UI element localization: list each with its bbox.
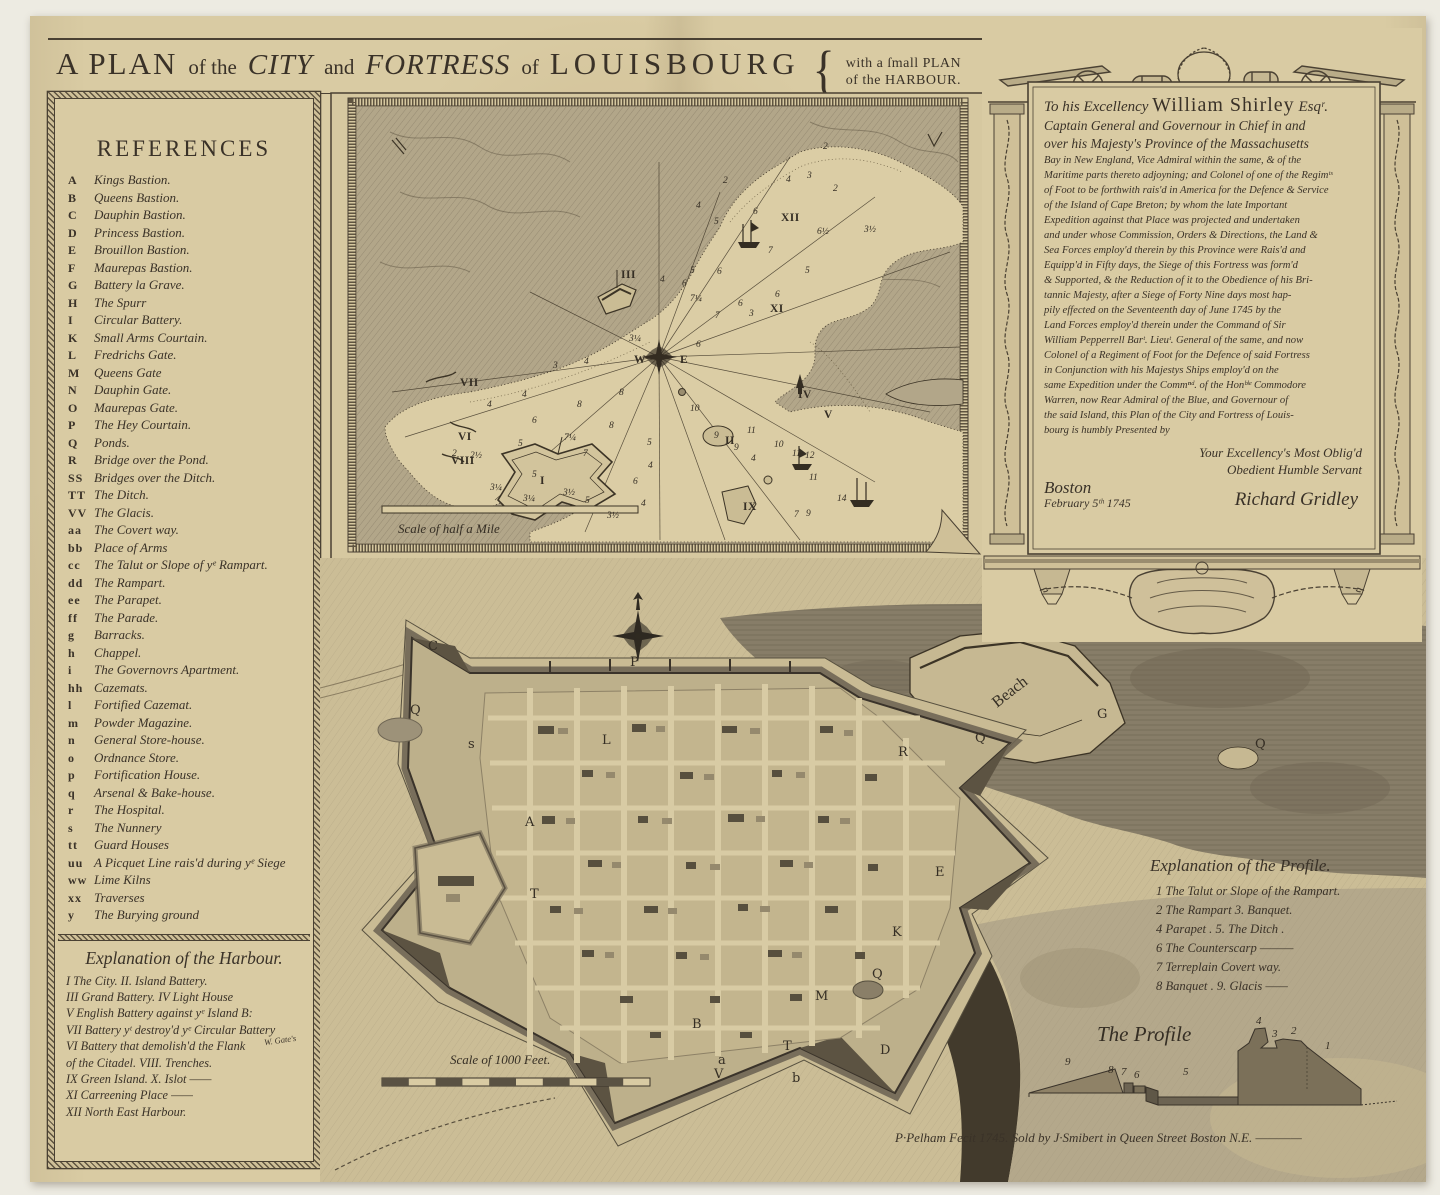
svg-text:T: T	[783, 1039, 792, 1054]
salutation-script: To his Excellency	[1044, 99, 1148, 115]
reference-key: SS	[68, 471, 94, 486]
profile-title: The Profile	[1097, 1022, 1191, 1046]
reference-key: q	[68, 786, 94, 801]
reference-item: l Fortified Cazemat.	[68, 697, 314, 715]
svg-text:IX: IX	[743, 501, 757, 513]
reference-label: Place of Arms	[94, 540, 167, 556]
svg-text:a: a	[718, 1053, 726, 1068]
reference-label: The Burying ground	[94, 907, 199, 923]
banquet-step	[1124, 1083, 1133, 1093]
reference-label: Lime Kilns	[94, 872, 151, 888]
reference-item: g Barracks.	[68, 627, 314, 645]
reference-label: The Parade.	[94, 610, 158, 626]
dedication-line: Bay in New England, Vice Admiral within …	[1044, 153, 1376, 168]
svg-text:5: 5	[532, 470, 537, 480]
dedication-body: Captain General and Governour in Chief i…	[1044, 117, 1376, 438]
reference-label: Battery la Grave.	[94, 277, 185, 293]
main-scale-bar	[382, 1078, 650, 1086]
reference-key: p	[68, 768, 94, 783]
dedication-place-date: Boston February 5ᵗʰ 1745	[1044, 480, 1131, 511]
reference-label: Queens Gate	[94, 365, 162, 381]
reference-label: Dauphin Gate.	[94, 382, 171, 398]
harbour-explanation-line: XI Carreening Place ——	[66, 1087, 314, 1103]
reference-item: SS Bridges over the Ditch.	[68, 470, 314, 488]
dedication-place: Boston	[1044, 480, 1131, 496]
svg-text:E: E	[680, 354, 688, 366]
svg-text:8: 8	[619, 388, 624, 398]
reference-item: C Dauphin Bastion.	[68, 207, 314, 225]
dedication-line: in Conjunction with his Majestys Ships e…	[1044, 363, 1376, 378]
reference-key: E	[68, 243, 94, 258]
title-and: and	[324, 55, 354, 80]
svg-text:3¼: 3¼	[628, 333, 641, 344]
svg-text:7¼: 7¼	[564, 432, 576, 443]
svg-text:s: s	[468, 737, 475, 752]
reference-key: y	[68, 908, 94, 923]
harbour-explanation-line: of the Citadel. VIII. Trenches.	[66, 1055, 314, 1071]
title-louisbourg: LOUISBOURG	[550, 46, 800, 82]
harbour-explanation-line: III Grand Battery. IV Light House	[66, 989, 314, 1005]
scanned-map-page: { "title": { "segments": [ {"t": "A PLAN…	[0, 0, 1440, 1195]
reference-key: xx	[68, 891, 94, 906]
svg-text:V: V	[824, 409, 833, 421]
svg-text:Q: Q	[1255, 737, 1266, 752]
reference-key: h	[68, 646, 94, 661]
reference-label: The Governovrs Apartment.	[94, 662, 239, 678]
svg-text:3½: 3½	[863, 224, 876, 235]
svg-text:5: 5	[585, 496, 590, 506]
reference-item: p Fortification House.	[68, 767, 314, 785]
svg-text:T: T	[530, 887, 539, 902]
reference-key: l	[68, 698, 94, 713]
reference-key: TT	[68, 488, 94, 503]
reference-label: Queens Bastion.	[94, 190, 179, 206]
reference-label: Maurepas Bastion.	[94, 260, 192, 276]
reference-key: L	[68, 348, 94, 363]
harbour-explanation-line: I The City. II. Island Battery.	[66, 973, 314, 989]
svg-text:10: 10	[690, 404, 700, 414]
dedication-line: Maritime parts thereto adjoyning; and Co…	[1044, 168, 1376, 183]
harbour-explanation-heading: Explanation of the Harbour.	[54, 948, 314, 969]
reference-item: s The Nunnery	[68, 820, 314, 838]
svg-text:6: 6	[753, 207, 758, 217]
reference-item: R Bridge over the Pond.	[68, 452, 314, 470]
reference-key: g	[68, 628, 94, 643]
reference-item: hh Cazemats.	[68, 680, 314, 698]
svg-text:6: 6	[532, 416, 537, 426]
reference-item: M Queens Gate	[68, 365, 314, 383]
terreplain-step	[1134, 1086, 1145, 1093]
svg-text:4: 4	[660, 275, 665, 285]
svg-text:6: 6	[682, 279, 687, 289]
svg-text:3¼: 3¼	[522, 493, 535, 504]
svg-text:5: 5	[647, 438, 652, 448]
reference-label: Barracks.	[94, 627, 145, 643]
reference-key: s	[68, 821, 94, 836]
dedication-line: & Supported, & the Reduction of it to th…	[1044, 273, 1376, 288]
reference-item: B Queens Bastion.	[68, 190, 314, 208]
dedication-text: To his Excellency William Shirley Esqʳ. …	[1034, 86, 1386, 554]
svg-text:3: 3	[552, 361, 558, 371]
svg-text:3¼: 3¼	[489, 482, 502, 493]
reference-label: Chappel.	[94, 645, 141, 661]
panel-divider	[58, 934, 310, 941]
reference-item: i The Governovrs Apartment.	[68, 662, 314, 680]
harbour-inset-map: 245643226½3½5663767¼456763¼3444688857¼72…	[330, 92, 985, 560]
dedication-line: Warren, now Rear Admiral of the Blue, an…	[1044, 393, 1376, 408]
svg-text:6: 6	[1134, 1069, 1140, 1081]
svg-text:XI: XI	[770, 303, 784, 315]
svg-text:8: 8	[577, 400, 582, 410]
reference-label: Princess Bastion.	[94, 225, 185, 241]
reference-item: F Maurepas Bastion.	[68, 260, 314, 278]
reference-item: cc The Talut or Slope of yᵉ Rampart.	[68, 557, 314, 575]
svg-text:G: G	[1097, 707, 1107, 722]
reference-label: Bridge over the Pond.	[94, 452, 209, 468]
profile-explanation-line: 6 The Counterscarp ———	[1150, 939, 1440, 958]
reference-key: tt	[68, 838, 94, 853]
svg-text:11: 11	[747, 426, 756, 436]
dedication-line: Captain General and Governour in Chief i…	[1044, 117, 1376, 135]
harbour-explanation-list: W. Gate's I The City. II. Island Battery…	[54, 973, 314, 1121]
svg-text:XII: XII	[781, 212, 800, 224]
reference-label: Maurepas Gate.	[94, 400, 178, 416]
profile-explanation-line: 8 Banquet . 9. Glacis ——	[1150, 977, 1440, 996]
reference-label: Guard Houses	[94, 837, 169, 853]
salutation-esq: Esqʳ.	[1298, 99, 1328, 115]
svg-text:W: W	[634, 354, 646, 366]
reference-label: Bridges over the Ditch.	[94, 470, 215, 486]
reference-label: Dauphin Bastion.	[94, 207, 186, 223]
reference-key: D	[68, 226, 94, 241]
reference-key: ww	[68, 873, 94, 888]
rampart-section	[1238, 1028, 1361, 1105]
reference-key: hh	[68, 681, 94, 696]
reference-key: Q	[68, 436, 94, 451]
reference-item: ff The Parade.	[68, 610, 314, 628]
svg-text:6: 6	[738, 299, 743, 309]
reference-item: aa The Covert way.	[68, 522, 314, 540]
svg-text:3: 3	[1271, 1028, 1278, 1040]
dedication-line: pily effected on the Seventeenth day of …	[1044, 303, 1376, 318]
reference-item: h Chappel.	[68, 645, 314, 663]
reference-label: Kings Bastion.	[94, 172, 171, 188]
svg-text:P: P	[630, 655, 639, 670]
dedication-line: William Pepperrell Barᵗ. Lieuᵗ. General …	[1044, 333, 1376, 348]
west-pond	[378, 718, 422, 742]
reference-key: R	[68, 453, 94, 468]
reference-item: Q Ponds.	[68, 435, 314, 453]
dedication-line: Expedition against that Place was projec…	[1044, 213, 1376, 228]
reference-item: TT The Ditch.	[68, 487, 314, 505]
dedication-signature-row: Boston February 5ᵗʰ 1745 Richard Gridley	[1044, 480, 1376, 511]
svg-text:4: 4	[648, 461, 653, 471]
svg-text:IV: IV	[798, 389, 812, 401]
reference-label: Cazemats.	[94, 680, 148, 696]
reference-key: ff	[68, 611, 94, 626]
profile-explanation-line: 2 The Rampart 3. Banquet.	[1150, 901, 1440, 920]
svg-text:II: II	[725, 435, 735, 447]
svg-text:D: D	[880, 1043, 890, 1058]
reference-item: bb Place of Arms	[68, 540, 314, 558]
reference-key: ee	[68, 593, 94, 608]
reference-item: ee The Parapet.	[68, 592, 314, 610]
reference-key: F	[68, 261, 94, 276]
reference-item: VV The Glacis.	[68, 505, 314, 523]
svg-text:7: 7	[1121, 1066, 1127, 1078]
svg-text:Q: Q	[410, 703, 421, 718]
reference-key: N	[68, 383, 94, 398]
reference-item: G Battery la Grave.	[68, 277, 314, 295]
svg-text:3: 3	[748, 309, 754, 319]
profile-explanation: Explanation of the Profile. 1 The Talut …	[1150, 856, 1440, 996]
svg-text:6: 6	[717, 267, 722, 277]
reference-label: The Rampart.	[94, 575, 166, 591]
svg-text:3½: 3½	[562, 487, 575, 498]
svg-text:6: 6	[696, 340, 701, 350]
svg-text:8: 8	[609, 421, 614, 431]
svg-text:4: 4	[786, 175, 791, 185]
reference-item: y The Burying ground	[68, 907, 314, 925]
harbour-explanation-line: IX Green Island. X. Islot ——	[66, 1071, 314, 1087]
reference-label: The Hey Courtain.	[94, 417, 191, 433]
svg-text:4: 4	[696, 201, 701, 211]
reference-item: m Powder Magazine.	[68, 715, 314, 733]
reference-label: Fredrichs Gate.	[94, 347, 177, 363]
dedication-line: Colonel of a Regiment of Foot for the De…	[1044, 348, 1376, 363]
reference-item: H The Spurr	[68, 295, 314, 313]
reference-label: The Glacis.	[94, 505, 154, 521]
svg-text:C: C	[428, 639, 438, 654]
closing-line1: Your Excellency's Most Oblig'd	[1044, 444, 1362, 461]
svg-text:E: E	[935, 865, 945, 880]
dedication-line: of the Island of Cape Breton; by whom th…	[1044, 198, 1376, 213]
reference-item: E Brouillon Bastion.	[68, 242, 314, 260]
svg-text:4: 4	[522, 390, 527, 400]
south-pond	[853, 981, 883, 999]
svg-text:4: 4	[487, 400, 492, 410]
reference-key: cc	[68, 558, 94, 573]
svg-text:6: 6	[775, 290, 780, 300]
engraved-map-sheet: A PLAN of the CITY and FORTRESS of LOUIS…	[30, 16, 1426, 1182]
reference-item: uu A Picquet Line rais'd during yᵉ Siege	[68, 855, 314, 873]
reference-item: I Circular Battery.	[68, 312, 314, 330]
svg-text:4: 4	[1256, 1015, 1262, 1027]
svg-text:3: 3	[806, 171, 812, 181]
dedication-closing: Your Excellency's Most Oblig'd Obedient …	[1044, 444, 1376, 478]
closing-line2: Obedient Humble Servant	[1044, 461, 1362, 478]
reference-key: r	[68, 803, 94, 818]
dedication-line: Equipp'd in Fifty days, the Siege of thi…	[1044, 258, 1376, 273]
svg-text:B: B	[692, 1017, 702, 1032]
dedication-line: over his Majesty's Province of the Massa…	[1044, 135, 1376, 153]
svg-text:Q: Q	[872, 967, 883, 982]
svg-text:6½: 6½	[817, 226, 829, 237]
dedication-date: February 5ᵗʰ 1745	[1044, 496, 1131, 511]
reference-label: Fortified Cazemat.	[94, 697, 192, 713]
reference-label: Circular Battery.	[94, 312, 182, 328]
references-panel: REFERENCES A Kings Bastion. B Queens Bas…	[48, 92, 320, 1168]
svg-text:Scale of half a Mile: Scale of half a Mile	[398, 521, 500, 536]
svg-text:VIII: VIII	[451, 455, 475, 467]
reference-key: O	[68, 401, 94, 416]
dedication-salutation: To his Excellency William Shirley Esqʳ.	[1044, 94, 1376, 117]
reference-label: Ordnance Store.	[94, 750, 179, 766]
imprint-line: P·Pelham Fecit 1745. Sold by J·Smibert i…	[895, 1130, 1435, 1146]
reference-item: O Maurepas Gate.	[68, 400, 314, 418]
svg-text:11: 11	[809, 473, 818, 483]
reference-item: N Dauphin Gate.	[68, 382, 314, 400]
dedication-line: Sea Forces employ'd therein by this Prov…	[1044, 243, 1376, 258]
svg-text:2: 2	[723, 176, 728, 186]
reference-label: Powder Magazine.	[94, 715, 192, 731]
reference-label: The Nunnery	[94, 820, 162, 836]
svg-text:4: 4	[641, 499, 646, 509]
svg-text:b: b	[792, 1071, 800, 1086]
svg-text:2: 2	[823, 142, 828, 152]
title-subnote: with a ſmall PLAN of the HARBOUR.	[846, 55, 961, 89]
svg-text:9: 9	[714, 431, 719, 441]
reference-label: Traverses	[94, 890, 145, 906]
title-of: of	[521, 55, 539, 80]
reference-label: Arsenal & Bake-house.	[94, 785, 215, 801]
dedication-line: of Foot to be forthwith rais'd in Americ…	[1044, 183, 1376, 198]
reference-label: The Hospital.	[94, 802, 165, 818]
svg-text:4: 4	[584, 357, 589, 367]
harbour-chart: 245643226½3½5663767¼456763¼3444688857¼72…	[330, 92, 985, 560]
profile-explanation-line: 7 Terreplain Covert way.	[1150, 958, 1440, 977]
reference-key: m	[68, 716, 94, 731]
dedication-line: Land Forces employ'd therein under the C…	[1044, 318, 1376, 333]
svg-text:K: K	[892, 925, 902, 940]
reference-key: dd	[68, 576, 94, 591]
reference-label: Ponds.	[94, 435, 130, 451]
reference-item: n General Store-house.	[68, 732, 314, 750]
reference-item: dd The Rampart.	[68, 575, 314, 593]
map-title: A PLAN of the CITY and FORTRESS of LOUIS…	[48, 38, 990, 94]
reference-key: aa	[68, 523, 94, 538]
profile-explanation-heading: Explanation of the Profile.	[1150, 856, 1440, 876]
reference-label: General Store-house.	[94, 732, 205, 748]
inset-scale-bar	[382, 506, 638, 513]
reference-key: M	[68, 366, 94, 381]
reference-item: P The Hey Courtain.	[68, 417, 314, 435]
svg-text:1: 1	[1325, 1040, 1331, 1052]
svg-text:4: 4	[751, 454, 756, 464]
title-of-the: of the	[188, 55, 236, 80]
reference-item: r The Hospital.	[68, 802, 314, 820]
profile-explanation-line: 1 The Talut or Slope of the Rampart.	[1150, 882, 1440, 901]
reference-label: Brouillon Bastion.	[94, 242, 190, 258]
reference-key: G	[68, 278, 94, 293]
reference-item: L Fredrichs Gate.	[68, 347, 314, 365]
dedication-signature: Richard Gridley	[1235, 489, 1376, 511]
reference-item: xx Traverses	[68, 890, 314, 908]
svg-text:12: 12	[805, 451, 815, 461]
salutation-name: William Shirley	[1152, 94, 1295, 116]
svg-text:10: 10	[774, 440, 784, 450]
title-city: CITY	[248, 49, 313, 82]
reference-key: P	[68, 418, 94, 433]
svg-text:2: 2	[833, 184, 838, 194]
reference-key: I	[68, 313, 94, 328]
svg-text:6: 6	[633, 477, 638, 487]
svg-text:3½: 3½	[606, 510, 619, 521]
svg-text:9: 9	[806, 509, 811, 519]
reference-key: i	[68, 663, 94, 678]
svg-text:5: 5	[690, 266, 695, 276]
reference-label: The Covert way.	[94, 522, 179, 538]
dedication-line: and under whose Commission, Orders & Dir…	[1044, 228, 1376, 243]
svg-text:A: A	[524, 815, 535, 830]
references-heading: REFERENCES	[54, 136, 314, 162]
reference-label: A Picquet Line rais'd during yᵉ Siege	[94, 855, 286, 871]
svg-text:L: L	[602, 733, 611, 748]
svg-text:11: 11	[792, 449, 801, 459]
title-fortress: FORTRESS	[365, 49, 510, 82]
svg-text:8: 8	[1108, 1064, 1114, 1076]
reference-key: B	[68, 191, 94, 206]
reference-label: The Ditch.	[94, 487, 149, 503]
subnote-line1: with a ſmall PLAN	[846, 55, 961, 72]
svg-text:III: III	[621, 269, 636, 281]
references-list: A Kings Bastion. B Queens Bastion. C Dau…	[54, 172, 314, 925]
reference-item: K Small Arms Courtain.	[68, 330, 314, 348]
reference-key: H	[68, 296, 94, 311]
dedication-line: the said Island, this Plan of the City a…	[1044, 408, 1376, 423]
reference-item: o Ordnance Store.	[68, 750, 314, 768]
dedication-cartouche: To his Excellency William Shirley Esqʳ. …	[982, 28, 1422, 642]
subnote-line2: of the HARBOUR.	[846, 72, 961, 89]
svg-text:5: 5	[518, 439, 523, 449]
svg-text:5: 5	[805, 266, 810, 276]
harbour-explanation-line: XII North East Harbour.	[66, 1104, 314, 1120]
svg-text:R: R	[898, 745, 909, 760]
dedication-line: bourg is humbly Presented by	[1044, 423, 1376, 438]
rampart-profile-diagram: 987654321 The Profile	[1025, 1015, 1405, 1125]
harbour-explanation-line: V English Battery against yᵉ Island B:	[66, 1005, 314, 1021]
shell-ornament-icon	[1040, 562, 1364, 633]
svg-text:Q: Q	[975, 731, 986, 746]
profile-figure: 987654321 The Profile	[1025, 1015, 1405, 1125]
svg-text:2: 2	[1291, 1025, 1297, 1037]
reference-key: K	[68, 331, 94, 346]
svg-text:VI: VI	[458, 431, 472, 443]
dedication-line: same Expedition under the Commⁿᵈ. of the…	[1044, 378, 1376, 393]
reference-key: o	[68, 751, 94, 766]
title-a-plan: A PLAN	[56, 46, 177, 82]
svg-text:V: V	[713, 1067, 724, 1082]
svg-text:14: 14	[837, 494, 847, 504]
dedication-line: tannic Majesty, after a Siege of Forty N…	[1044, 288, 1376, 303]
reference-key: C	[68, 208, 94, 223]
reference-label: Small Arms Courtain.	[94, 330, 208, 346]
svg-text:5: 5	[1183, 1066, 1189, 1078]
inset-scale-label: Scale of half a Mile	[398, 521, 500, 536]
svg-text:Scale of 1000 Feet.: Scale of 1000 Feet.	[450, 1052, 550, 1067]
svg-text:9: 9	[1065, 1056, 1071, 1068]
profile-explanation-line: 4 Parapet . 5. The Ditch .	[1150, 920, 1440, 939]
reference-item: ww Lime Kilns	[68, 872, 314, 890]
reference-key: uu	[68, 856, 94, 871]
reference-key: VV	[68, 506, 94, 521]
reference-item: tt Guard Houses	[68, 837, 314, 855]
reference-key: n	[68, 733, 94, 748]
svg-text:7¼: 7¼	[690, 293, 702, 304]
reference-item: D Princess Bastion.	[68, 225, 314, 243]
reference-item: A Kings Bastion.	[68, 172, 314, 190]
reference-key: bb	[68, 541, 94, 556]
